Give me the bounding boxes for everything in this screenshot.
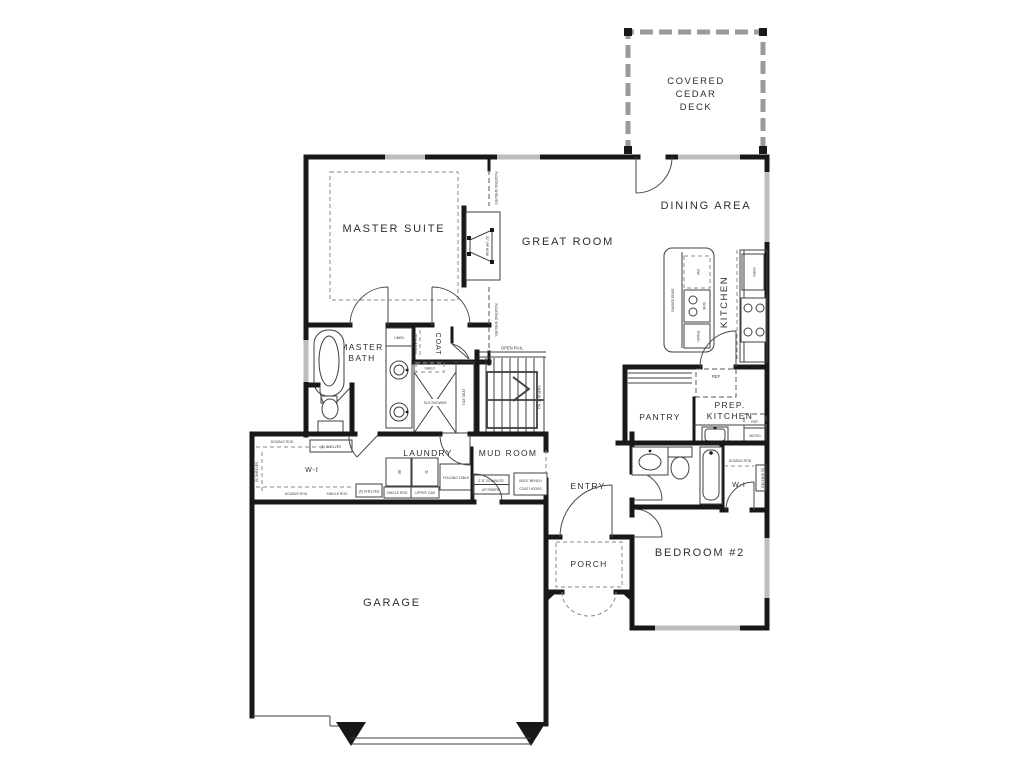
master-bath-label-line1: MASTER	[340, 342, 383, 352]
pantry-label: PANTRY	[639, 412, 681, 422]
tile-shower-note: TILE SHOWER	[423, 401, 447, 405]
raised-edge-note: RAISED EDGE	[671, 288, 675, 312]
prep-kitchen-label-line1: PREP.	[715, 400, 746, 410]
laundry: LAUNDRY W D SINGLE ROD UPPER CAB FOLDING…	[384, 435, 472, 502]
prep-fridge-note: REF.	[751, 420, 758, 424]
tile-seat-note: TILE SEAT	[462, 389, 466, 406]
bath2-toilet	[671, 457, 689, 479]
boot-bench-note-line1: BOOT BENCH	[519, 479, 542, 483]
wc-shelves-note: (5) SHELVES	[321, 445, 342, 449]
shelf-note: SHELF	[425, 367, 436, 371]
single-rod-bottom-note: SINGLE ROD	[327, 492, 348, 496]
fireplace-wall: 52" OP HDW FLOATING SHELVES FLOATING SHE…	[464, 157, 500, 364]
prep-kitchen-label-line2: KITCHEN	[707, 411, 753, 421]
sink-bowl	[689, 308, 697, 316]
open-rail-note: OPEN RAIL	[501, 346, 524, 351]
boot-bench	[514, 473, 547, 495]
double-rod-bottom-note: DOUBLE ROD	[285, 492, 308, 496]
deck-label-line2: CEDAR	[676, 89, 717, 100]
deck-label-line3: DECK	[680, 102, 712, 113]
door-arc	[350, 287, 388, 325]
master-closet-label: W-I	[305, 467, 319, 474]
bedroom-door-arc	[634, 509, 662, 537]
entry-porch: ENTRY PORCH	[546, 481, 632, 616]
bath2-sink	[639, 454, 661, 470]
oven-note: OVEN	[752, 267, 756, 277]
bed2-closet-double-rod-note: DOUBLE ROD	[729, 459, 752, 463]
stairs-note: DN 16 RISERS	[538, 385, 542, 409]
upper-cab-note: UPPER CAB	[415, 491, 435, 495]
coat-closet: SINGLE ROD COAT	[414, 328, 469, 362]
shelves-left-note: (5) SHELVES	[255, 461, 259, 482]
kitchen-label: KITCHEN	[719, 276, 730, 328]
dining-label: DINING AREA	[661, 200, 752, 212]
washer-letter: W	[397, 470, 402, 474]
master-walk-in-closet: W-I DOUBLE ROD (5) SHELVES DOUBLE ROD SI…	[255, 435, 382, 497]
bedroom2-label: BEDROOM #2	[655, 547, 745, 559]
sink-note: SINK	[702, 302, 706, 311]
trash-note: TRASH	[696, 330, 700, 342]
fridge-note: REF	[712, 374, 721, 379]
double-rod-top-note: DOUBLE ROD	[271, 440, 294, 444]
master-bath-label-line2: BATH	[348, 353, 375, 363]
garage: GARAGE	[252, 502, 546, 746]
floating-shelves-note-top: FLOATING SHELVES	[494, 171, 498, 205]
sink-bowl	[689, 296, 697, 304]
floor-plan: COVERED CEDAR DECK MASTER SUITE	[0, 0, 1024, 768]
vanity-sink	[390, 361, 408, 379]
deck-label-line1: COVERED	[667, 76, 724, 87]
coat-single-rod-note: SINGLE ROD	[414, 333, 418, 354]
vanity-sink	[390, 403, 408, 421]
garage-label: GARAGE	[363, 597, 421, 609]
dishwasher-note: DW	[696, 269, 700, 275]
linen-note: LINEN	[394, 336, 405, 340]
front-door-arc	[560, 485, 612, 537]
bed2-closet-label: W-I	[732, 482, 746, 489]
garage-door-note-line1: 2'-8" 20-MINUTE	[478, 479, 504, 483]
door-arc	[432, 287, 470, 325]
door-arc	[452, 344, 469, 359]
garage-door	[351, 738, 531, 744]
covered-deck: COVERED CEDAR DECK	[624, 28, 767, 154]
boot-bench-note-line2: COAT HOOKS	[519, 487, 542, 491]
stairs: OPEN RAIL DN 16 RISERS	[477, 346, 546, 435]
porch-label: PORCH	[570, 559, 607, 569]
kitchen: KITCHEN DW SINK TRASH RAISED EDGE OVEN	[664, 248, 767, 362]
bath-door-arc	[634, 472, 662, 500]
door-arc	[440, 435, 470, 465]
toilet	[322, 399, 338, 419]
floating-shelves-note-bottom: FLOATING SHELVES	[494, 303, 498, 337]
bedroom-wing: BEDROOM #2 DOUBLE ROD (5) SHELVES W-I	[632, 434, 767, 628]
door-arc	[349, 435, 378, 457]
dryer-letter: D	[424, 470, 429, 473]
stair-direction-arrow	[513, 377, 529, 401]
garage-door-jamb	[336, 722, 366, 746]
garage-door-jamb	[516, 722, 546, 746]
bed2-closet-shelves-note: (5) SHELVES	[761, 468, 765, 489]
mud-room: MUD ROOM 2'-8" 20-MINUTE UP RISERS BOOT …	[473, 448, 547, 502]
single-rod-laundry-note: SINGLE ROD	[387, 491, 408, 495]
bath2-toilet-tank	[668, 447, 692, 457]
folding-table-note: FOLDING TABLE	[443, 476, 470, 480]
deck-door-arc	[636, 157, 672, 193]
fireplace-note: 52" OP HDW	[485, 236, 489, 257]
mud-room-label: MUD ROOM	[479, 448, 538, 458]
shelves-box-note: (5) SHELVES	[359, 490, 380, 494]
micro-note: MICRO	[749, 434, 761, 438]
great-room-label: GREAT ROOM	[522, 236, 614, 248]
garage-door-note-line2: UP RISERS	[482, 488, 501, 492]
master-suite-label: MASTER SUITE	[343, 223, 446, 235]
coat-label: COAT	[434, 333, 441, 356]
